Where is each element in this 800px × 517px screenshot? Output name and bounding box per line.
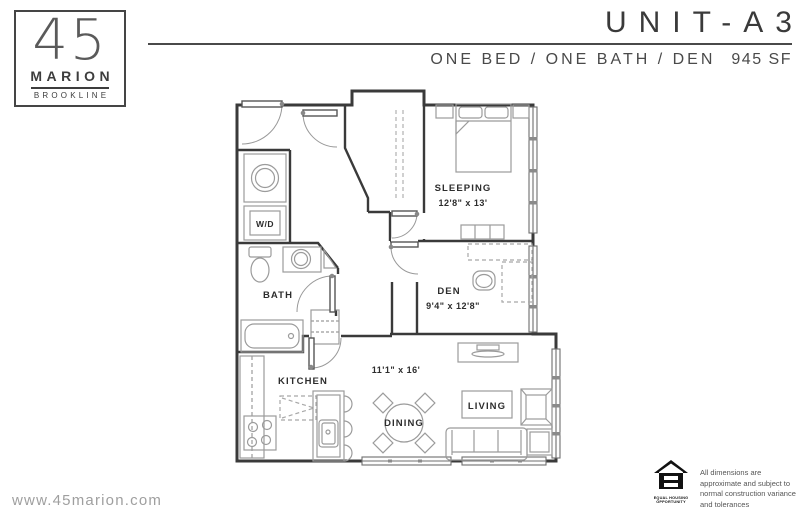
side-table (527, 429, 552, 455)
bed (456, 104, 511, 172)
label-den: DEN (437, 286, 460, 297)
bathtub (241, 320, 303, 352)
closet-rod (396, 110, 403, 200)
toilet (249, 247, 271, 282)
website-url: www.45marion.com (12, 492, 162, 509)
eho-label-bottom: OPPORTUNITY (653, 500, 689, 504)
desk-chair (473, 271, 495, 290)
floorplan-sheet: 45 MARION BROOKLINE UNIT-A3 ONE BED / ON… (0, 0, 800, 517)
label-dining: DINING (384, 418, 424, 429)
label-kitchen: KITCHEN (278, 376, 328, 387)
floorplan-drawing: SLEEPING 12'8" x 13' DEN 9'4" x 12'8" BA… (0, 0, 800, 517)
vanity-sink (283, 247, 336, 272)
equal-housing-block: EQUAL HOUSING OPPORTUNITY (653, 460, 689, 504)
desk (468, 244, 532, 302)
upper-cabinets (280, 396, 316, 420)
label-laundry: W/D (256, 219, 274, 229)
sofa (446, 428, 527, 460)
armchair (521, 389, 552, 425)
dims-sleeping: 12'8" x 13' (438, 198, 487, 208)
stove (244, 416, 276, 450)
label-living: LIVING (468, 401, 506, 412)
label-sleeping: SLEEPING (435, 183, 492, 194)
disclaimer-text: All dimensions are approximate and subje… (700, 468, 798, 510)
dresser (461, 225, 504, 239)
dims-den: 9'4" x 12'8" (426, 301, 480, 311)
label-bath: BATH (263, 290, 293, 301)
dims-great-room: 11'1" x 16' (372, 365, 421, 375)
kitchen-island (313, 391, 352, 461)
equal-housing-opportunity-icon (653, 460, 689, 490)
tv-console (458, 343, 518, 362)
room-labels: SLEEPING 12'8" x 13' DEN 9'4" x 12'8" BA… (256, 183, 506, 429)
